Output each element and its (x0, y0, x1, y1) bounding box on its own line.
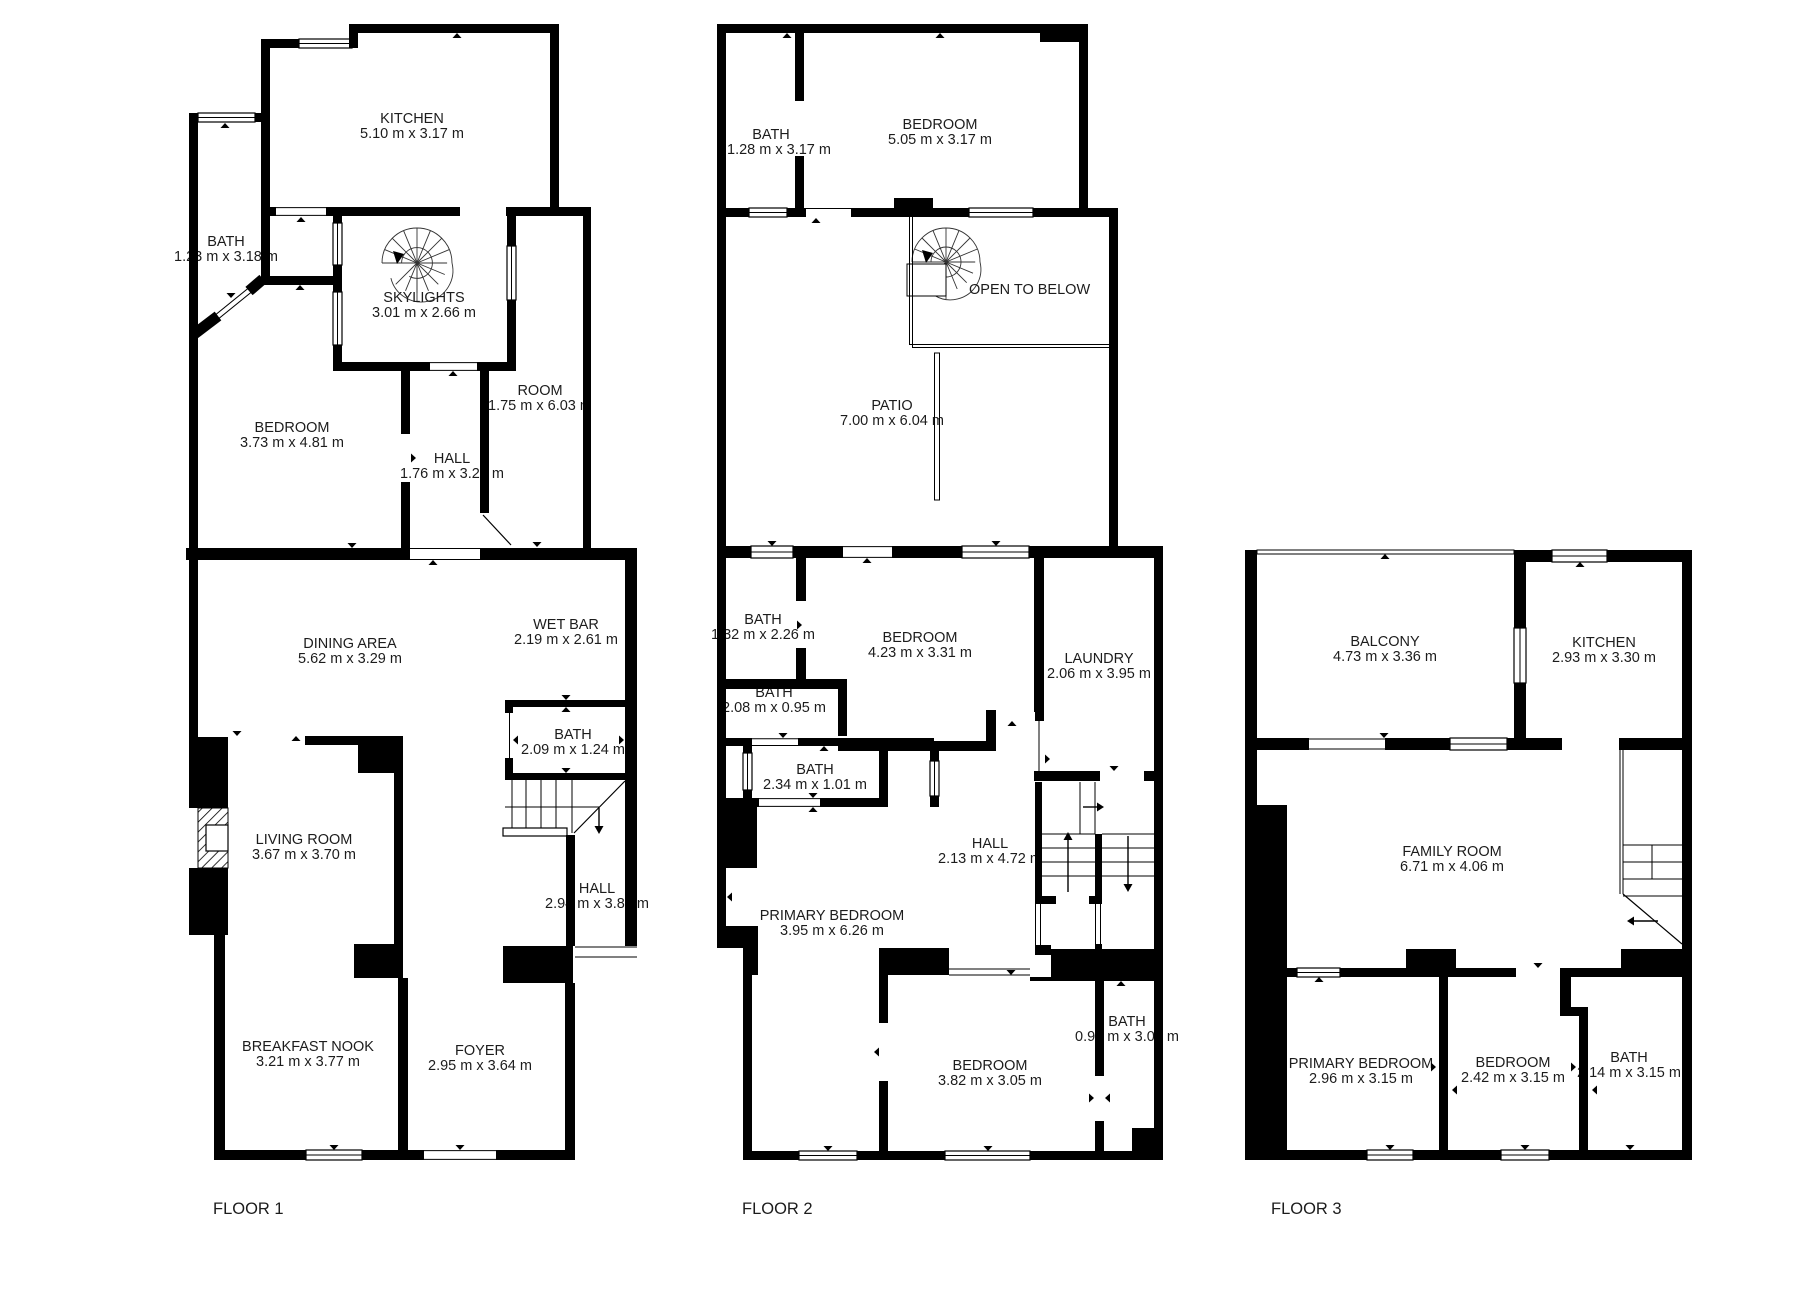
svg-text:2.93 m x 3.30 m: 2.93 m x 3.30 m (1552, 650, 1656, 666)
svg-text:PATIO: PATIO (871, 398, 912, 414)
svg-text:7.00 m x 6.04 m: 7.00 m x 6.04 m (840, 413, 944, 429)
svg-text:4.73 m x 3.36 m: 4.73 m x 3.36 m (1333, 649, 1437, 665)
svg-text:3.01 m x 2.66 m: 3.01 m x 2.66 m (372, 305, 476, 321)
svg-text:2.06 m x 3.95 m: 2.06 m x 3.95 m (1047, 666, 1151, 682)
svg-text:3.95 m x 6.26 m: 3.95 m x 6.26 m (780, 923, 884, 939)
svg-text:BEDROOM: BEDROOM (953, 1058, 1028, 1074)
svg-text:FOYER: FOYER (455, 1043, 505, 1059)
svg-text:HALL: HALL (972, 836, 1008, 852)
svg-text:3.67 m x 3.70 m: 3.67 m x 3.70 m (252, 847, 356, 863)
svg-text:BATH: BATH (207, 234, 245, 250)
svg-text:HALL: HALL (579, 881, 615, 897)
svg-text:FLOOR 3: FLOOR 3 (1271, 1200, 1342, 1218)
svg-text:2.42 m x 3.15 m: 2.42 m x 3.15 m (1461, 1070, 1565, 1086)
svg-text:LIVING ROOM: LIVING ROOM (256, 832, 353, 848)
svg-text:OPEN TO BELOW: OPEN TO BELOW (969, 282, 1090, 298)
svg-text:3.21 m x 3.77 m: 3.21 m x 3.77 m (256, 1054, 360, 1070)
svg-text:2.08 m x 0.95 m: 2.08 m x 0.95 m (722, 700, 826, 716)
svg-text:PRIMARY BEDROOM: PRIMARY BEDROOM (1289, 1056, 1434, 1072)
svg-text:HALL: HALL (434, 451, 470, 467)
svg-text:2.13 m x 4.72 m: 2.13 m x 4.72 m (938, 851, 1042, 867)
svg-text:BATH: BATH (752, 127, 790, 143)
svg-text:BEDROOM: BEDROOM (903, 117, 978, 133)
svg-text:BALCONY: BALCONY (1350, 634, 1420, 650)
svg-text:2.19 m x 2.61 m: 2.19 m x 2.61 m (514, 632, 618, 648)
svg-text:BEDROOM: BEDROOM (1476, 1055, 1551, 1071)
svg-text:FLOOR 2: FLOOR 2 (742, 1200, 813, 1218)
svg-text:5.10 m x 3.17 m: 5.10 m x 3.17 m (360, 126, 464, 142)
svg-text:FAMILY ROOM: FAMILY ROOM (1402, 844, 1501, 860)
svg-text:WET BAR: WET BAR (533, 617, 599, 633)
svg-text:ROOM: ROOM (517, 383, 562, 399)
svg-text:LAUNDRY: LAUNDRY (1064, 651, 1133, 667)
svg-text:1.75 m x 6.03 m: 1.75 m x 6.03 m (488, 398, 592, 414)
svg-text:6.71 m x 4.06 m: 6.71 m x 4.06 m (1400, 859, 1504, 875)
svg-text:BATH: BATH (796, 762, 834, 778)
svg-text:DINING AREA: DINING AREA (303, 636, 397, 652)
svg-text:BATH: BATH (554, 727, 592, 743)
svg-text:BEDROOM: BEDROOM (883, 630, 958, 646)
svg-text:KITCHEN: KITCHEN (380, 111, 444, 127)
svg-text:BEDROOM: BEDROOM (255, 420, 330, 436)
svg-text:BATH: BATH (1610, 1050, 1648, 1066)
svg-text:2.34 m x 1.01 m: 2.34 m x 1.01 m (763, 777, 867, 793)
svg-text:2.14 m x 3.15 m: 2.14 m x 3.15 m (1577, 1065, 1681, 1081)
svg-text:2.09 m x 1.24 m: 2.09 m x 1.24 m (521, 742, 625, 758)
svg-text:1.28 m x 3.17 m: 1.28 m x 3.17 m (727, 142, 831, 158)
svg-text:BATH: BATH (1108, 1014, 1146, 1030)
svg-text:4.23 m x 3.31 m: 4.23 m x 3.31 m (868, 645, 972, 661)
svg-text:SKYLIGHTS: SKYLIGHTS (383, 290, 464, 306)
svg-text:PRIMARY BEDROOM: PRIMARY BEDROOM (760, 908, 905, 924)
svg-text:FLOOR 1: FLOOR 1 (213, 1200, 284, 1218)
svg-text:5.62 m x 3.29 m: 5.62 m x 3.29 m (298, 651, 402, 667)
svg-text:KITCHEN: KITCHEN (1572, 635, 1636, 651)
svg-text:2.95 m x 3.64 m: 2.95 m x 3.64 m (428, 1058, 532, 1074)
svg-text:5.05 m x 3.17 m: 5.05 m x 3.17 m (888, 132, 992, 148)
svg-text:3.73 m x 4.81 m: 3.73 m x 4.81 m (240, 435, 344, 451)
svg-text:0.99 m x 3.05 m: 0.99 m x 3.05 m (1075, 1029, 1179, 1045)
svg-text:2.96 m x 3.15 m: 2.96 m x 3.15 m (1309, 1071, 1413, 1087)
svg-text:3.82 m x 3.05 m: 3.82 m x 3.05 m (938, 1073, 1042, 1089)
svg-text:1.32 m x 2.26 m: 1.32 m x 2.26 m (711, 627, 815, 643)
svg-text:BREAKFAST NOOK: BREAKFAST NOOK (242, 1039, 374, 1055)
svg-text:BATH: BATH (744, 612, 782, 628)
